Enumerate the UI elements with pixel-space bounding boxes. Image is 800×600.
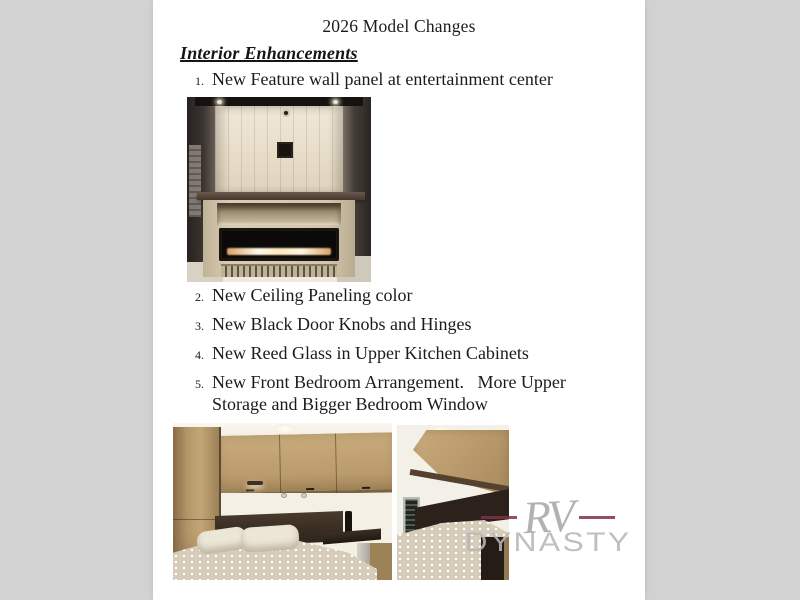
pillow	[240, 524, 300, 553]
list-item-text: New Feature wall panel at entertainment …	[212, 69, 553, 91]
page-title: 2026 Model Changes	[153, 16, 645, 37]
list-item-4: 4. New Reed Glass in Upper Kitchen Cabin…	[195, 343, 529, 365]
list-item-text: New Reed Glass in Upper Kitchen Cabinets	[212, 343, 529, 365]
list-item-number: 3.	[195, 319, 212, 334]
bedroom-left-photo	[173, 423, 392, 580]
screenshot-canvas: 2026 Model Changes Interior Enhancements…	[0, 0, 800, 600]
open-shelf-niche	[217, 203, 341, 225]
puck-light	[301, 493, 307, 498]
wardrobe-seam	[173, 519, 221, 520]
watermark-dash	[579, 516, 615, 519]
list-item-1: 1. New Feature wall panel at entertainme…	[195, 69, 553, 91]
nightstand	[481, 537, 509, 580]
cabinet-seam	[279, 435, 281, 495]
list-item-number: 1.	[195, 74, 212, 89]
tv-outlet-box	[277, 142, 293, 158]
list-item-number: 5.	[195, 377, 212, 392]
list-item-2: 2. New Ceiling Paneling color	[195, 285, 412, 307]
list-item-text: New Black Door Knobs and Hinges	[212, 314, 471, 336]
list-item-5: 5. New Front Bedroom Arrangement. More U…	[195, 372, 566, 416]
section-heading: Interior Enhancements	[180, 43, 358, 64]
list-item-number: 2.	[195, 290, 212, 305]
mantel-shelf	[197, 192, 365, 200]
under-cabinet-light	[247, 481, 263, 485]
puck-light	[281, 493, 287, 498]
list-item-3: 3. New Black Door Knobs and Hinges	[195, 314, 471, 336]
cabinet-handle	[246, 489, 254, 491]
background-window	[189, 145, 201, 217]
list-item-text: New Ceiling Paneling color	[212, 285, 412, 307]
cabinet-seam	[335, 434, 337, 494]
list-item-number: 4.	[195, 348, 212, 363]
base-vent	[221, 264, 337, 277]
cabinet-handle	[306, 488, 314, 490]
entertainment-center-photo	[187, 97, 371, 282]
ceiling-light	[217, 100, 222, 104]
fireplace-flame	[227, 248, 331, 255]
document-page: 2026 Model Changes Interior Enhancements…	[153, 0, 645, 600]
speaker-object	[345, 511, 352, 533]
cabinet-handle	[362, 487, 370, 489]
ceiling-light	[333, 100, 338, 104]
watermark-rv-script: RV	[520, 493, 576, 542]
wall-grommet	[282, 109, 290, 117]
list-item-text: New Front Bedroom Arrangement. More Uppe…	[212, 372, 566, 416]
bedroom-right-photo	[397, 425, 509, 580]
ceiling-light	[273, 424, 297, 434]
overhead-cabinets	[217, 432, 392, 496]
fireplace	[219, 228, 339, 261]
